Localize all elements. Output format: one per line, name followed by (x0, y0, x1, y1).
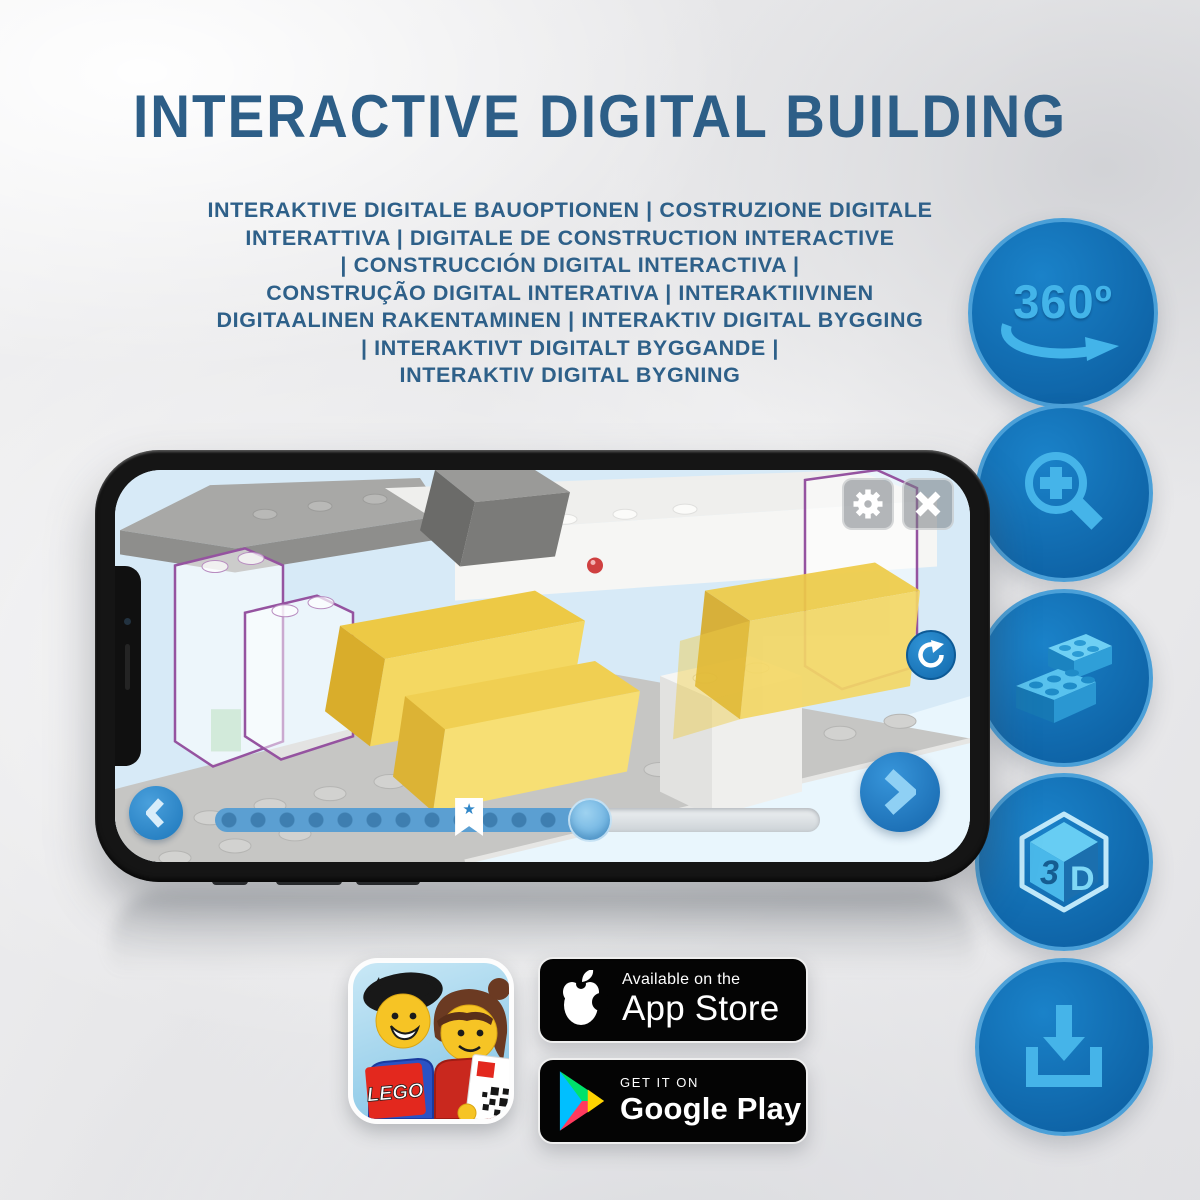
phone-notch (115, 566, 141, 766)
cube-3-label: 3 (1040, 854, 1059, 892)
subtitle-line: INTERAKTIV DIGITAL BYGNING (95, 362, 1045, 390)
google-play-name: Google Play (620, 1091, 801, 1127)
phone: ★ (95, 450, 990, 882)
page-title: INTERACTIVE DIGITAL BUILDING (0, 81, 1200, 151)
gear-icon (853, 489, 883, 519)
feature-brick-badge (975, 589, 1153, 767)
app-store-tagline: Available on the (622, 971, 779, 989)
zoom-in-magnifier-icon (1016, 445, 1112, 541)
app-store-badge[interactable]: Available on the App Store (538, 957, 808, 1043)
subtitle-line: | CONSTRUCCIÓN DIGITAL INTERACTIVA | (95, 252, 1045, 280)
app-store-name: App Store (622, 989, 779, 1029)
lego-scene (115, 470, 970, 862)
feature-3d-badge: 3 D (975, 773, 1153, 951)
chevron-left-icon (146, 798, 166, 828)
download-icon (1012, 995, 1116, 1099)
subtitle: INTERAKTIVE DIGITALE BAUOPTIONEN | COSTR… (95, 197, 1045, 390)
close-icon (914, 490, 942, 518)
poster: INTERACTIVE DIGITAL BUILDING INTERAKTIVE… (0, 0, 1200, 1200)
feature-360-badge: 360º (968, 218, 1158, 408)
back-button[interactable] (129, 786, 183, 840)
subtitle-line: INTERATTIVA | DIGITALE DE CONSTRUCTION I… (95, 225, 1045, 253)
google-play-tagline: GET IT ON (620, 1075, 801, 1090)
next-button[interactable] (860, 752, 940, 832)
google-play-badge[interactable]: GET IT ON Google Play (538, 1058, 808, 1144)
lego-app-art: LEGO (353, 963, 509, 1119)
apple-icon (558, 970, 608, 1030)
subtitle-line: | INTERAKTIVT DIGITALT BYGGANDE | (95, 335, 1045, 363)
feature-zoom-badge (975, 404, 1153, 582)
cube-d-label: D (1070, 860, 1095, 898)
lego-app-icon[interactable]: LEGO (348, 958, 514, 1124)
lego-bricks-icon (1010, 624, 1118, 732)
slider-fill (215, 808, 590, 832)
subtitle-line: INTERAKTIVE DIGITALE BAUOPTIONEN | COSTR… (95, 197, 1045, 225)
camera-dot (124, 618, 131, 625)
slider-thumb[interactable] (568, 798, 612, 842)
3d-cube-icon: 3 D (1010, 808, 1118, 916)
phone-screen: ★ (115, 470, 970, 862)
close-button[interactable] (902, 478, 954, 530)
progress-slider[interactable]: ★ (215, 808, 820, 832)
rotate-arrow-icon (997, 321, 1129, 363)
rotate-icon (916, 640, 946, 670)
google-play-icon (558, 1069, 606, 1133)
settings-button[interactable] (842, 478, 894, 530)
feature-download-badge (975, 958, 1153, 1136)
rotate-button[interactable] (906, 630, 956, 680)
speaker-slit (125, 644, 130, 690)
subtitle-line: CONSTRUÇÃO DIGITAL INTERATIVA | INTERAKT… (95, 280, 1045, 308)
chevron-right-icon (884, 769, 916, 815)
subtitle-line: DIGITAALINEN RAKENTAMINEN | INTERAKTIV D… (95, 307, 1045, 335)
